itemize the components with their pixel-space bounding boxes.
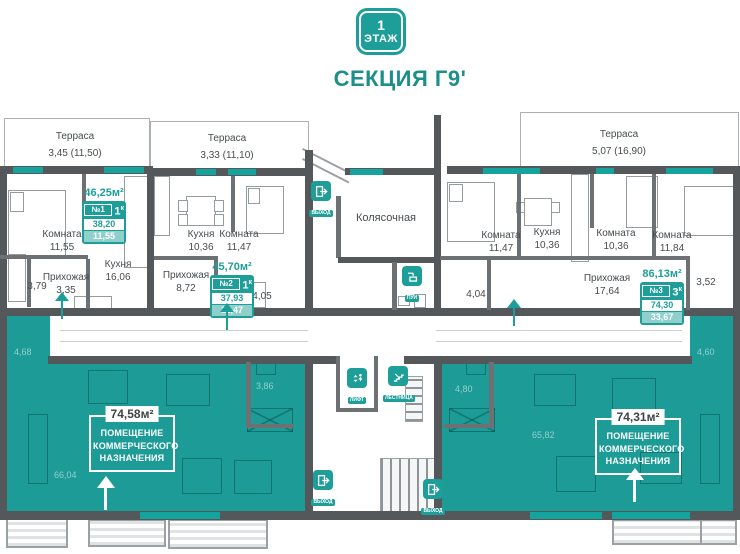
furniture-chair <box>214 214 224 226</box>
window-marker <box>530 512 602 519</box>
apartment-badge-1[interactable]: 46,25м² №1 1к 38,20 11,55 <box>76 187 132 244</box>
window-marker <box>612 512 690 519</box>
stroller-room-label: Колясочная <box>356 212 416 224</box>
wall <box>733 170 740 316</box>
wall-corridor-bottom <box>48 356 337 364</box>
window-marker <box>666 168 713 174</box>
outside-steps <box>700 519 737 545</box>
corridor-line <box>436 341 682 342</box>
furniture-chair <box>214 200 224 212</box>
staircase-sign: ЛЕСТНИЦА <box>383 366 413 404</box>
apartment-total-area: 86,13м² <box>634 268 690 280</box>
furniture-bed <box>684 186 734 236</box>
floor-label: ЭТАЖ <box>364 33 398 46</box>
room-label: Кухня10,36 <box>534 227 561 252</box>
apartment-number: №3 <box>642 285 670 297</box>
room-label: Комната11,84 <box>652 230 691 255</box>
wall <box>0 255 88 259</box>
exit-sign: ВЫХОД <box>418 479 448 517</box>
apartment-area-main: 74,30 <box>642 300 682 311</box>
window-marker <box>228 169 256 175</box>
commercial-area-value: 74,31м² <box>612 409 665 425</box>
entrance-arrow <box>626 468 642 502</box>
apartment-area-main: 37,93 <box>212 293 252 304</box>
section-title: СЕКЦИЯ Г9' <box>290 66 510 92</box>
floor-badge-frame: 1 ЭТАЖ <box>359 11 403 52</box>
furniture-kitchen-counter <box>154 176 170 236</box>
furniture-desk <box>166 374 210 406</box>
terrace-label: Терраса 3,33 (11,10) <box>200 133 253 161</box>
apartment-number: №1 <box>84 204 112 216</box>
wall <box>338 257 438 263</box>
entrance-porch <box>168 519 268 549</box>
exit-sign: ВЫХОД <box>308 470 338 508</box>
furniture-desk <box>612 378 656 410</box>
entrance-porch <box>88 519 166 547</box>
wall <box>0 166 7 316</box>
terrace-label: Терраса 5,07 (16,90) <box>592 129 646 157</box>
apartment-rooms: 1к <box>114 203 124 218</box>
apartment-total-area: 45,70м² <box>204 261 260 273</box>
wall <box>590 174 594 228</box>
wall <box>246 424 294 428</box>
window-marker <box>196 169 216 175</box>
wall <box>246 362 251 428</box>
sub-area-label: 4,60 <box>697 347 715 357</box>
wall-corridor-bottom <box>404 356 692 364</box>
lift-sign: ЛИФТ <box>342 368 372 406</box>
furniture-bathtub <box>8 254 26 302</box>
wall <box>489 362 494 428</box>
sub-area-label: 65,82 <box>532 430 555 440</box>
apartment-total-area: 46,25м² <box>76 187 132 199</box>
furniture-dining-table <box>524 198 552 226</box>
furniture-chair <box>551 202 560 213</box>
furniture-desk <box>88 370 128 404</box>
window-marker <box>140 512 220 519</box>
wall <box>305 150 313 316</box>
room-label: Комната11,47 <box>219 229 258 254</box>
entrance-arrow <box>54 292 70 319</box>
sub-area-label: 4,80 <box>455 384 473 394</box>
sub-area-label: 3,86 <box>256 381 274 391</box>
window-marker <box>104 167 144 173</box>
wall <box>147 168 154 316</box>
furniture-chair <box>178 200 188 212</box>
wall <box>336 196 341 258</box>
exit-icon <box>423 479 443 499</box>
wall <box>440 256 690 260</box>
apartment-area-living: 11,55 <box>84 231 124 242</box>
commercial-label-right[interactable]: ПОМЕЩЕНИЕ КОММЕРЧЕСКОГО НАЗНАЧЕНИЯ 74,31… <box>595 418 681 475</box>
sub-area-label: 4,68 <box>14 347 32 357</box>
room-label: Комната11,47 <box>481 230 520 255</box>
window-marker <box>350 169 383 175</box>
commercial-label-left[interactable]: ПОМЕЩЕНИЕ КОММЕРЧЕСКОГО НАЗНАЧЕНИЯ 74,58… <box>89 415 175 472</box>
corridor-line <box>436 330 682 331</box>
furniture-kitchen-counter <box>571 174 589 262</box>
entrance-arrow <box>219 303 235 330</box>
commercial-area-value: 74,58м² <box>106 406 159 422</box>
floor-number: 1 <box>377 18 385 33</box>
terrace-label: Терраса 3,45 (11,50) <box>48 131 101 159</box>
apartment-area-main: 38,20 <box>84 219 124 230</box>
apartment-number: №2 <box>212 278 240 290</box>
window-marker <box>13 167 43 173</box>
corridor-line <box>60 341 308 342</box>
room-label: Кухня16,06 <box>105 259 132 284</box>
wall <box>487 260 491 310</box>
room-label: 3,79 <box>27 281 46 294</box>
wall-lift-shaft <box>336 356 340 412</box>
wall <box>733 308 740 520</box>
furniture-desk <box>556 456 596 492</box>
room-label: 4,04 <box>466 289 485 302</box>
staircase-icon <box>388 366 408 386</box>
window-marker <box>596 168 614 174</box>
furniture-desk <box>534 374 576 406</box>
wall <box>231 176 235 232</box>
room-label: Кухня10,36 <box>188 229 215 254</box>
wall <box>0 308 7 520</box>
entrance-arrow <box>97 476 113 510</box>
cleaning-room-icon <box>402 266 422 286</box>
apartment-rooms: 3к <box>672 284 682 299</box>
exit-icon <box>311 181 331 201</box>
wall-lift-shaft <box>374 356 378 412</box>
room-label: Прихожая17,64 <box>584 273 630 298</box>
apartment-badge-3[interactable]: 86,13м² №3 3к 74,30 33,67 <box>634 268 690 325</box>
floor-badge: 1 ЭТАЖ <box>356 8 406 55</box>
room-label: Прихожая8,72 <box>163 270 209 295</box>
entrance-arrow <box>506 299 522 326</box>
wall-lift-shaft <box>336 408 378 412</box>
furniture-chair <box>178 214 188 226</box>
furniture-cabinet <box>700 414 720 484</box>
apartment-rooms: 1к <box>242 277 252 292</box>
corridor-line <box>60 330 308 331</box>
furniture-desk <box>234 460 272 494</box>
room-label: Комната10,36 <box>596 228 635 253</box>
lift-icon <box>347 368 367 388</box>
cleaning-room-sign: ПУИ <box>397 266 427 304</box>
window-marker <box>483 168 540 174</box>
room-label: 3,52 <box>696 277 715 290</box>
wall <box>444 424 494 428</box>
furniture-pillow <box>248 188 260 204</box>
exit-sign: ВЫХОД <box>306 181 336 219</box>
furniture-cabinet <box>28 414 48 484</box>
wall-corridor-top <box>0 308 740 316</box>
apartment-area-living: 33,67 <box>642 312 682 323</box>
furniture-crossed-table <box>247 408 293 432</box>
wall <box>434 115 441 316</box>
furniture-desk <box>182 458 222 494</box>
floor-plan: 1 ЭТАЖ СЕКЦИЯ Г9' <box>0 0 740 554</box>
furniture-dining-table <box>186 196 216 226</box>
wall <box>154 256 216 260</box>
exit-icon <box>313 470 333 490</box>
furniture-pillow <box>449 184 463 202</box>
sub-area-label: 66,04 <box>54 470 77 480</box>
furniture-pillow <box>10 192 24 212</box>
entrance-porch <box>612 519 708 545</box>
